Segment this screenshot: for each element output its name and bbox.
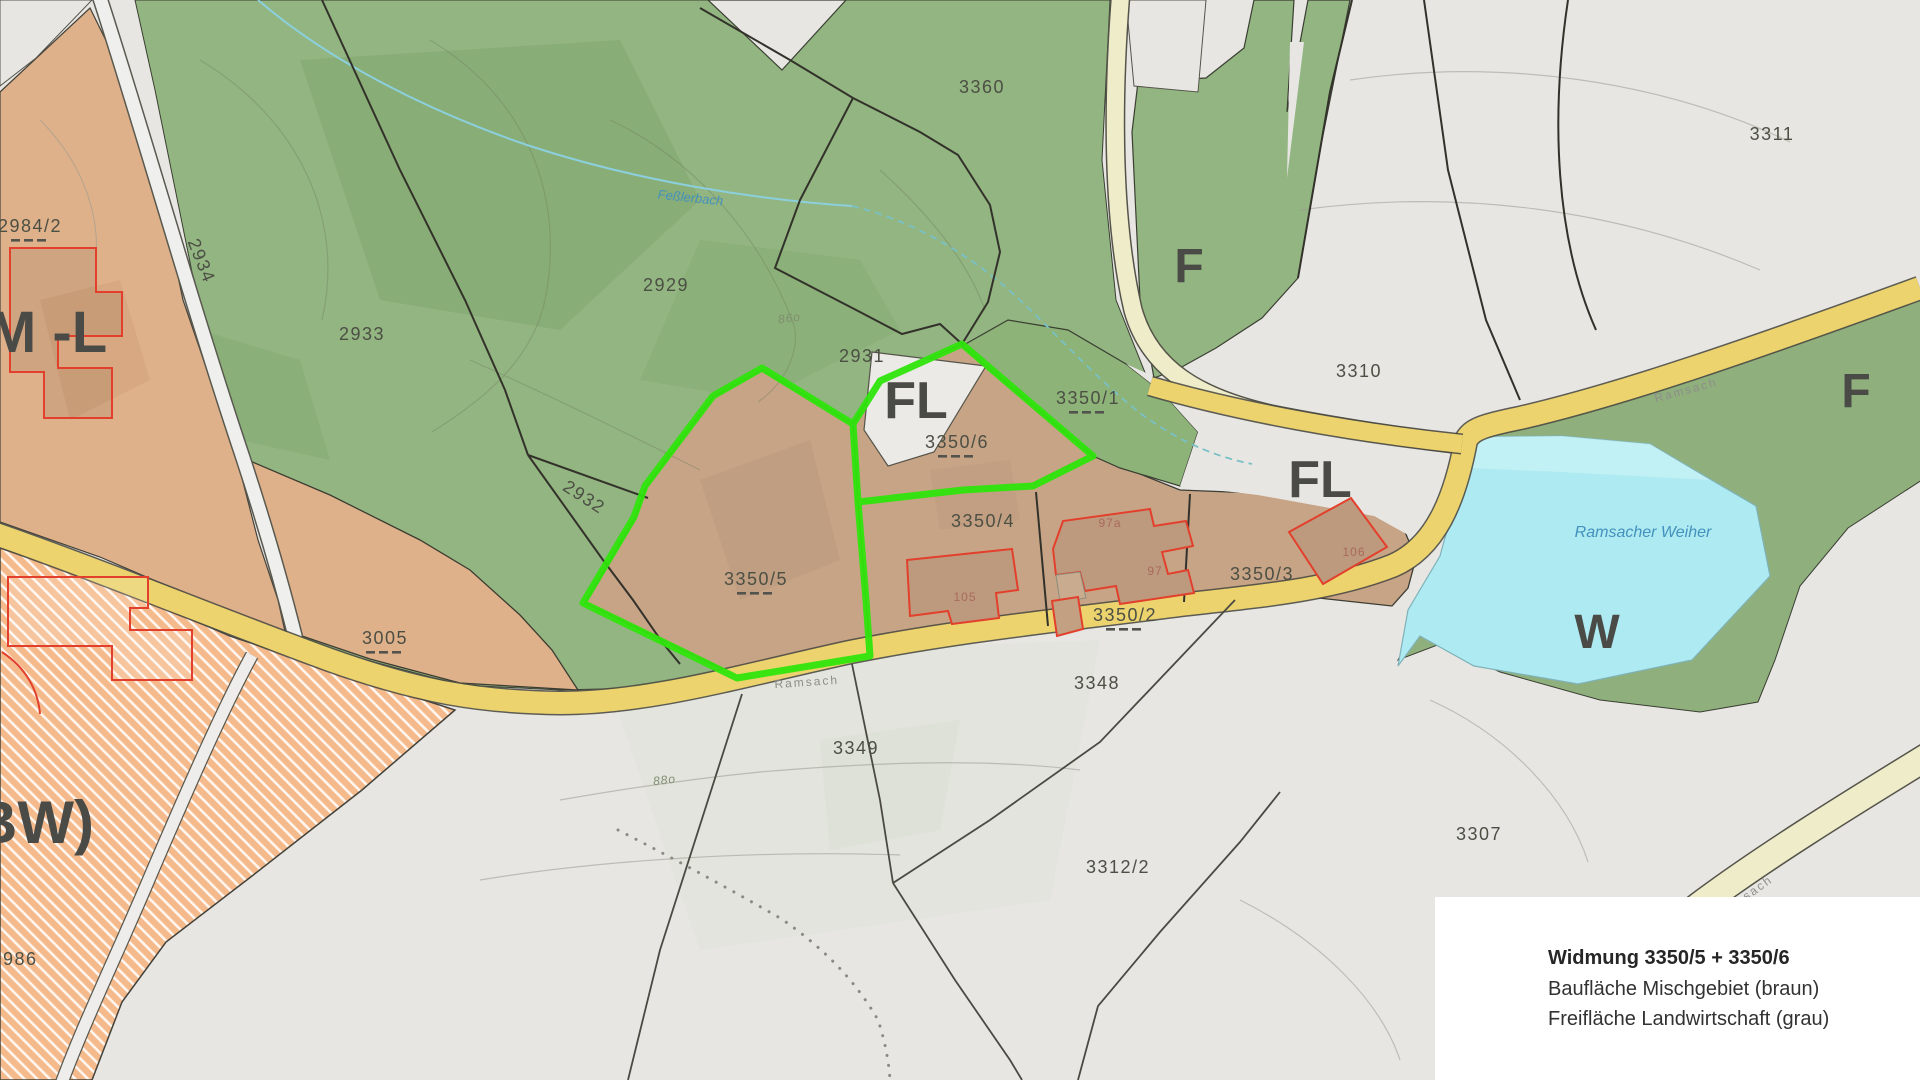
label-underline-dash [379, 651, 388, 654]
label-fl: FL [884, 372, 948, 430]
label-underline-dash [392, 651, 401, 654]
label-underline-dash [24, 239, 33, 242]
label-2929: 2929 [643, 275, 689, 295]
label-3350-6: 3350/6 [925, 432, 989, 452]
label-3360: 3360 [959, 77, 1005, 97]
label-106: 106 [1342, 545, 1365, 559]
label-underline-dash [938, 455, 947, 458]
label-f: F [1841, 365, 1870, 418]
label-88o: 88o [652, 772, 677, 789]
label-underline-dash [1132, 628, 1141, 631]
gray-notch [1126, 0, 1206, 92]
label-3310: 3310 [1336, 361, 1382, 381]
label-underline-dash [1095, 411, 1104, 414]
label-2933: 2933 [339, 324, 385, 344]
label-3350-5: 3350/5 [724, 569, 788, 589]
label-underline-dash [737, 592, 746, 595]
label-3348: 3348 [1074, 673, 1120, 693]
label-105: 105 [953, 590, 976, 604]
legend-box: Widmung 3350/5 + 3350/6 Baufläche Mischg… [1435, 897, 1920, 1080]
legend-line-landwirtschaft: Freifläche Landwirtschaft (grau) [1548, 1008, 1910, 1031]
label-3349: 3349 [833, 738, 879, 758]
label-underline-dash [11, 239, 20, 242]
label-underline-dash [750, 592, 759, 595]
label-underline-dash [763, 592, 772, 595]
label-986: 986 [3, 949, 38, 969]
legend-title: Widmung 3350/5 + 3350/6 [1548, 947, 1910, 970]
label-3307: 3307 [1456, 824, 1502, 844]
label-ramsacher-weiher: Ramsacher Weiher [1575, 524, 1712, 541]
label-2984-2: 2984/2 [0, 216, 62, 236]
label-3350-3: 3350/3 [1230, 564, 1294, 584]
label-underline-dash [1069, 411, 1078, 414]
label-3311: 3311 [1750, 124, 1795, 144]
building-small-3350-2 [1052, 597, 1083, 636]
label-f: F [1174, 240, 1203, 293]
legend-line-mischgebiet: Baufläche Mischgebiet (braun) [1548, 978, 1910, 1001]
label-3350-2: 3350/2 [1093, 605, 1157, 625]
label-fl: FL [1288, 451, 1352, 509]
label-bw-: BW) [0, 789, 94, 856]
label-underline-dash [1082, 411, 1091, 414]
label-underline-dash [1106, 628, 1115, 631]
label-97a: 97a [1098, 516, 1121, 530]
label-m-l: M -L [0, 300, 107, 365]
label-3005: 3005 [362, 628, 408, 648]
label-underline-dash [964, 455, 973, 458]
label-3350-1: 3350/1 [1056, 388, 1120, 408]
label-underline-dash [1119, 628, 1128, 631]
label-97: 97 [1147, 564, 1162, 578]
map-stage[interactable]: 2984/22934293329293360293129323350/13350… [0, 0, 1920, 1080]
label-3312-2: 3312/2 [1086, 857, 1150, 877]
label-w: W [1574, 606, 1620, 659]
label-underline-dash [37, 239, 46, 242]
label-underline-dash [366, 651, 375, 654]
label-2931: 2931 [839, 346, 885, 366]
label-underline-dash [951, 455, 960, 458]
label-3350-4: 3350/4 [951, 511, 1015, 531]
